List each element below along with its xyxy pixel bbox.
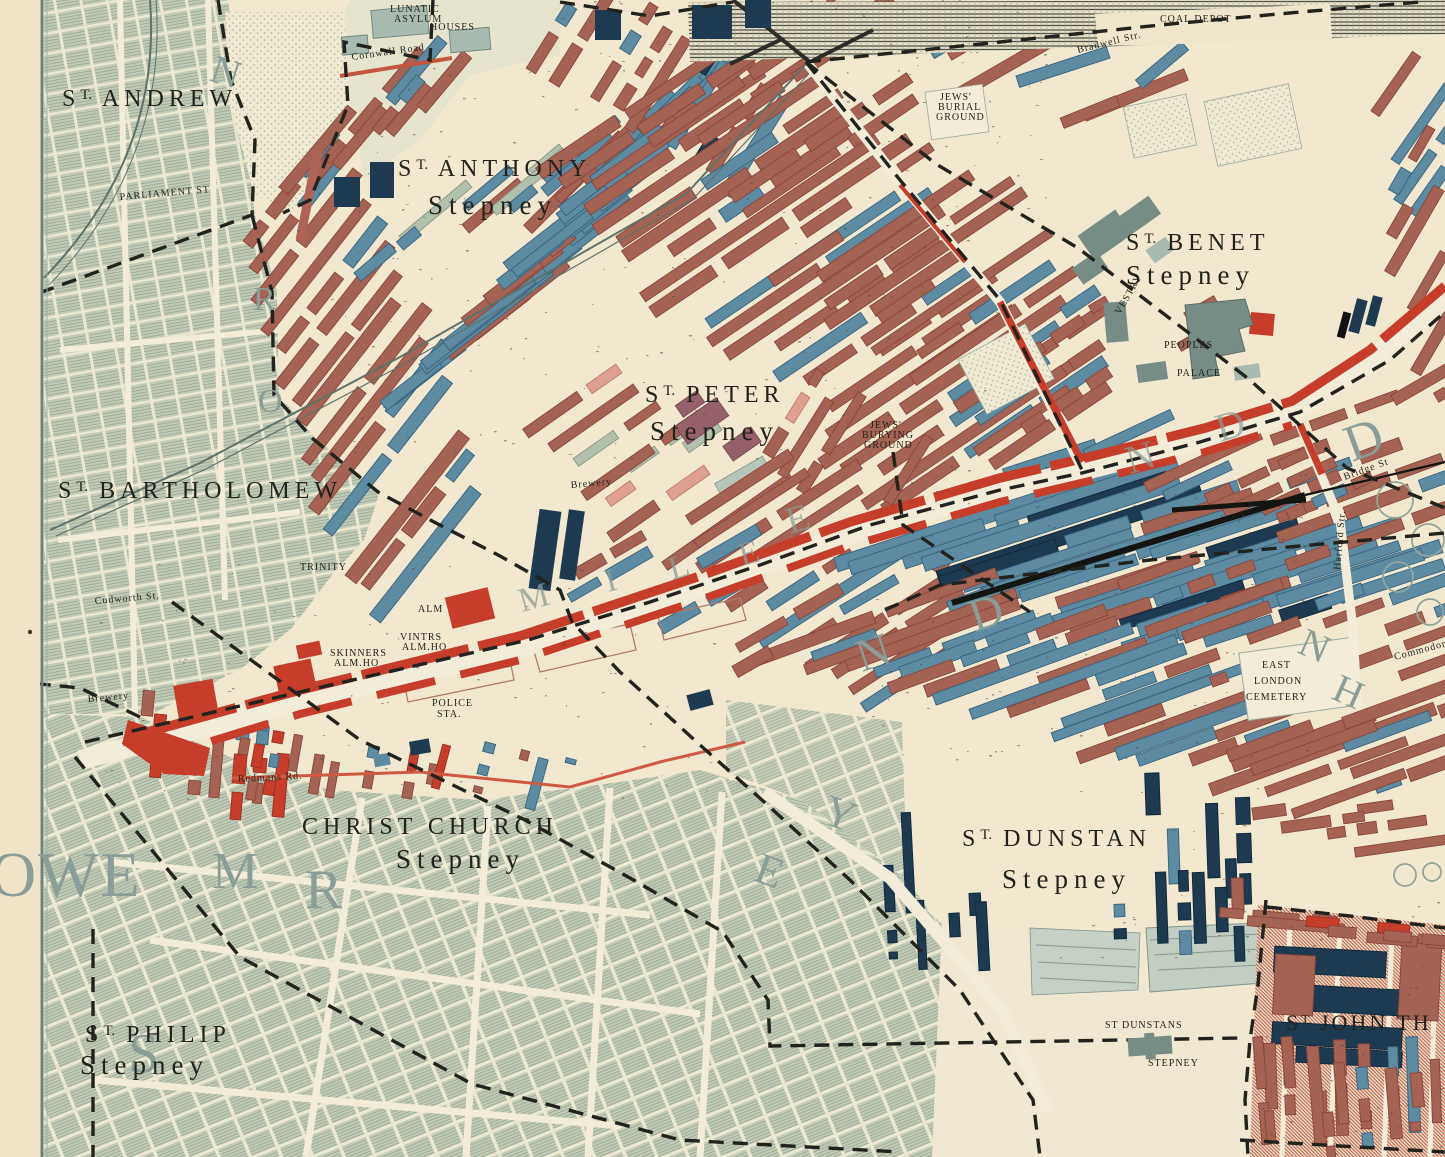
svg-text:GROUND: GROUND <box>864 440 913 451</box>
svg-text:Stepney: Stepney <box>1002 864 1131 894</box>
svg-text:STA.: STA. <box>437 709 462 720</box>
svg-text:Stepney: Stepney <box>428 190 557 220</box>
svg-text:COAL DEPOT: COAL DEPOT <box>1160 14 1232 25</box>
svg-text:EAST: EAST <box>1262 660 1291 671</box>
svg-text:PALACE: PALACE <box>1177 368 1221 379</box>
svg-text:HOUSES: HOUSES <box>430 22 475 33</box>
svg-text:OWE: OWE <box>0 839 142 910</box>
svg-text:R: R <box>305 859 343 921</box>
svg-text:LONDON: LONDON <box>1254 676 1302 687</box>
svg-text:TRINITY: TRINITY <box>300 562 347 573</box>
svg-text:ALM.HO: ALM.HO <box>402 642 447 653</box>
svg-text:O: O <box>258 383 283 420</box>
svg-text:GROUND: GROUND <box>936 112 985 123</box>
svg-text:Stepney: Stepney <box>396 844 525 874</box>
svg-text:POLICE: POLICE <box>432 698 473 709</box>
svg-text:R: R <box>253 281 276 318</box>
svg-text:Stepney: Stepney <box>80 1050 209 1080</box>
svg-text:ST. BARTHOLOMEW: ST. BARTHOLOMEW <box>58 478 342 504</box>
svg-text:Stepney: Stepney <box>1126 260 1255 290</box>
svg-text:ST DUNSTANS: ST DUNSTANS <box>1105 1020 1183 1031</box>
svg-text:M: M <box>212 843 258 900</box>
svg-text:CHRIST CHURCH: CHRIST CHURCH <box>302 814 558 840</box>
svg-text:ALM: ALM <box>418 604 443 615</box>
svg-text:PEOPLES: PEOPLES <box>1164 340 1213 351</box>
svg-text:Stepney: Stepney <box>650 416 779 446</box>
svg-text:CEMETERY: CEMETERY <box>1246 692 1307 703</box>
svg-text:STEPNEY: STEPNEY <box>1148 1058 1199 1069</box>
svg-text:ALM.HO: ALM.HO <box>334 658 379 669</box>
